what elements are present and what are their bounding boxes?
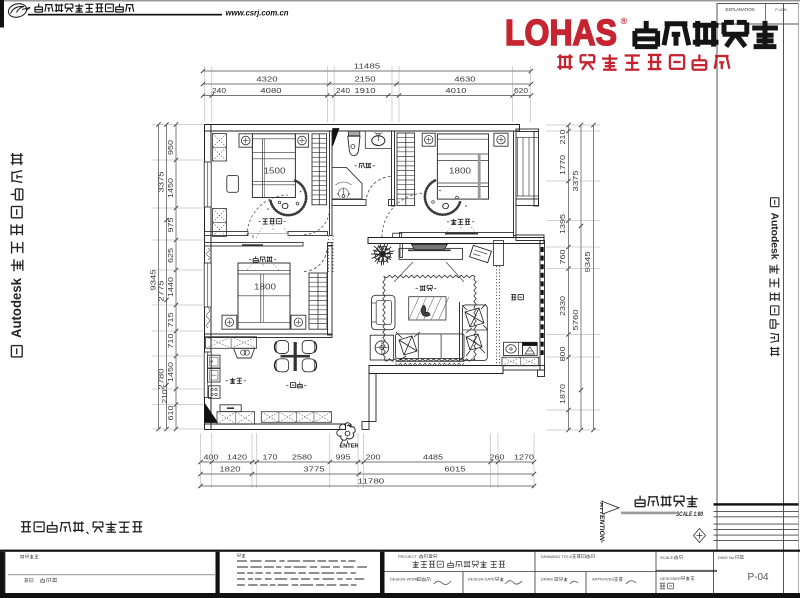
svg-text:3775: 3775 — [303, 465, 324, 474]
svg-text:DWG No: DWG No — [718, 555, 735, 560]
svg-text:710: 710 — [166, 334, 175, 349]
svg-text:www.csrj.com.cn: www.csrj.com.cn — [226, 8, 289, 18]
svg-text:2150: 2150 — [354, 75, 375, 84]
svg-text:620: 620 — [514, 86, 528, 95]
svg-text:210: 210 — [160, 390, 169, 404]
svg-text:1800: 1800 — [254, 283, 277, 292]
svg-text:LOHAS: LOHAS — [505, 12, 617, 53]
svg-text:Autodesk: Autodesk — [9, 278, 24, 338]
svg-text:SCALE: SCALE — [660, 555, 673, 560]
svg-text:4320: 4320 — [256, 75, 277, 84]
svg-text:2775: 2775 — [156, 280, 165, 301]
svg-text:1450: 1450 — [166, 178, 175, 198]
svg-text:11780: 11780 — [358, 477, 385, 486]
svg-text:625: 625 — [166, 248, 175, 263]
svg-text:1420: 1420 — [227, 453, 247, 462]
svg-text:1500: 1500 — [264, 167, 287, 176]
svg-text:DESIGN WORK: DESIGN WORK — [390, 577, 419, 582]
svg-text:2780: 2780 — [156, 368, 165, 389]
svg-text:1770: 1770 — [558, 155, 567, 175]
svg-text:170: 170 — [263, 453, 278, 462]
svg-text:1395: 1395 — [558, 214, 567, 234]
svg-text:1450: 1450 — [166, 362, 175, 382]
svg-text:SCALE 1:80: SCALE 1:80 — [676, 511, 703, 518]
svg-text:4630: 4630 — [454, 75, 475, 84]
svg-text:240: 240 — [336, 86, 350, 95]
svg-text:240: 240 — [212, 86, 226, 95]
svg-text:1800: 1800 — [449, 167, 472, 176]
svg-text:4485: 4485 — [423, 453, 443, 462]
svg-text:P-12/N: P-12/N — [775, 8, 787, 12]
svg-text:1870: 1870 — [558, 384, 567, 404]
svg-text:1820: 1820 — [219, 465, 240, 474]
svg-text:400: 400 — [204, 453, 219, 462]
svg-text:P-04: P-04 — [748, 572, 769, 583]
svg-text:260: 260 — [490, 453, 505, 462]
svg-text:1440: 1440 — [166, 277, 175, 297]
svg-text:DESIGN DATE: DESIGN DATE — [468, 577, 495, 582]
svg-text:®: ® — [621, 16, 628, 26]
svg-text:6015: 6015 — [444, 465, 465, 474]
svg-text:3375: 3375 — [156, 171, 165, 192]
svg-text:1910: 1910 — [354, 86, 375, 95]
svg-text:610: 610 — [166, 406, 175, 421]
svg-text:DESIGNER: DESIGNER — [660, 576, 681, 581]
svg-text:995: 995 — [336, 453, 351, 462]
svg-text:210: 210 — [558, 130, 567, 145]
svg-text:715: 715 — [166, 313, 175, 328]
svg-text:ENTER: ENTER — [340, 444, 359, 450]
svg-text:1270: 1270 — [514, 453, 534, 462]
svg-text:5760: 5760 — [571, 309, 580, 330]
svg-text:11485: 11485 — [354, 62, 381, 71]
svg-text:4080: 4080 — [260, 86, 281, 95]
svg-text:DRAWING TITLE: DRAWING TITLE — [541, 554, 572, 559]
svg-text:4010: 4010 — [445, 86, 466, 95]
svg-text:800: 800 — [558, 347, 567, 362]
svg-text:200: 200 — [366, 453, 381, 462]
svg-text:EXPLANATION: EXPLANATION — [725, 7, 754, 12]
svg-text:975: 975 — [166, 218, 175, 233]
svg-text:Autodesk: Autodesk — [769, 213, 781, 260]
svg-text:APPROVED: APPROVED — [592, 577, 614, 582]
svg-text:9345: 9345 — [583, 251, 592, 272]
svg-text:2580: 2580 — [292, 453, 312, 462]
svg-text:760: 760 — [558, 250, 567, 265]
svg-text:PROJECT: PROJECT — [398, 554, 417, 559]
svg-text:950: 950 — [166, 140, 175, 155]
svg-text:DRAW: DRAW — [541, 577, 553, 582]
svg-text:2330: 2330 — [558, 296, 567, 316]
